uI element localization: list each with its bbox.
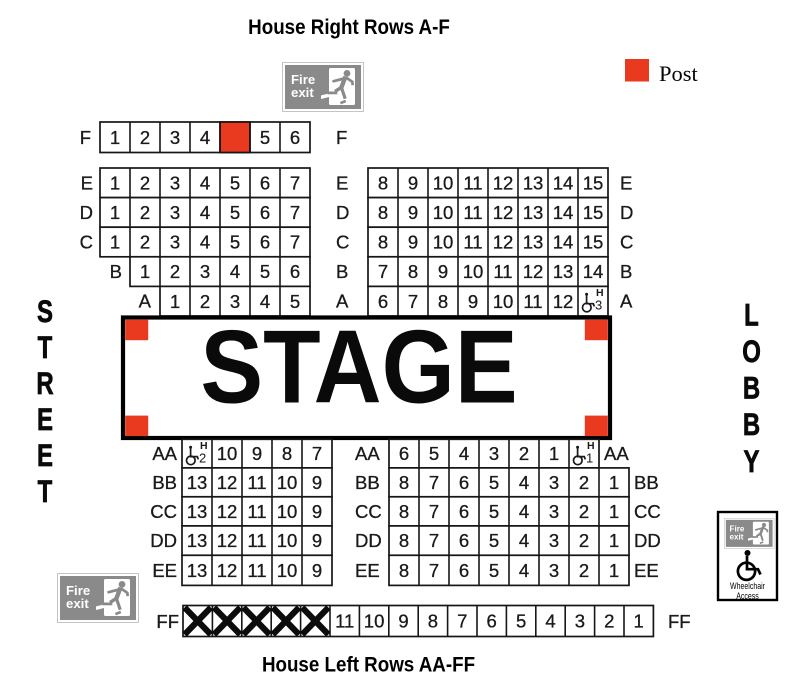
svg-text:10: 10	[433, 172, 454, 193]
svg-text:4: 4	[519, 560, 529, 581]
svg-text:9: 9	[312, 530, 322, 551]
svg-text:6: 6	[487, 611, 497, 632]
svg-text:6: 6	[459, 530, 469, 551]
svg-text:DD: DD	[634, 530, 661, 551]
svg-text:1: 1	[609, 530, 619, 551]
svg-text:9: 9	[398, 611, 408, 632]
svg-text:8: 8	[378, 232, 388, 253]
svg-text:5: 5	[489, 501, 499, 522]
svg-text:FF: FF	[156, 611, 179, 632]
svg-text:BB: BB	[355, 472, 380, 493]
svg-text:1: 1	[609, 472, 619, 493]
svg-text:B: B	[110, 261, 122, 282]
svg-text:3: 3	[549, 560, 559, 581]
svg-text:3: 3	[549, 472, 559, 493]
svg-text:4: 4	[230, 261, 240, 282]
svg-text:3: 3	[575, 611, 585, 632]
svg-text:E: E	[620, 172, 632, 193]
svg-text:11: 11	[247, 472, 266, 493]
svg-text:AA: AA	[152, 443, 177, 464]
svg-text:12: 12	[523, 261, 544, 282]
svg-text:1: 1	[609, 560, 619, 581]
svg-text:5: 5	[260, 261, 270, 282]
svg-text:3: 3	[489, 443, 499, 464]
svg-text:6: 6	[260, 202, 270, 223]
svg-text:8: 8	[378, 172, 388, 193]
svg-text:CC: CC	[355, 501, 382, 522]
svg-text:4: 4	[200, 232, 210, 253]
svg-text:C: C	[80, 232, 93, 253]
svg-text:B: B	[743, 407, 760, 442]
svg-text:4: 4	[519, 472, 529, 493]
svg-text:6: 6	[260, 232, 270, 253]
svg-text:8: 8	[282, 443, 292, 464]
svg-text:7: 7	[457, 611, 467, 632]
svg-text:EE: EE	[634, 560, 659, 581]
svg-text:2: 2	[140, 202, 150, 223]
svg-text:2: 2	[579, 530, 589, 551]
svg-text:9: 9	[408, 202, 418, 223]
svg-text:4: 4	[200, 202, 210, 223]
svg-text:2: 2	[140, 172, 150, 193]
svg-text:C: C	[336, 232, 349, 253]
svg-text:B: B	[743, 370, 760, 405]
svg-text:L: L	[744, 297, 759, 332]
svg-text:3: 3	[549, 501, 559, 522]
svg-text:2: 2	[579, 501, 589, 522]
svg-text:4: 4	[200, 172, 210, 193]
svg-text:7: 7	[312, 443, 322, 464]
svg-text:11: 11	[463, 232, 482, 253]
svg-text:9: 9	[438, 261, 448, 282]
svg-text:3: 3	[170, 172, 180, 193]
svg-text:12: 12	[217, 560, 238, 581]
svg-text:E: E	[81, 172, 93, 193]
svg-text:7: 7	[290, 232, 300, 253]
svg-text:7: 7	[290, 202, 300, 223]
svg-text:2: 2	[170, 261, 180, 282]
svg-text:12: 12	[217, 530, 238, 551]
svg-text:13: 13	[553, 261, 574, 282]
svg-text:9: 9	[408, 232, 418, 253]
svg-text:3: 3	[200, 261, 210, 282]
svg-text:11: 11	[247, 501, 266, 522]
svg-text:BB: BB	[152, 472, 177, 493]
svg-text:11: 11	[463, 202, 482, 223]
svg-text:6: 6	[290, 127, 300, 148]
svg-text:5: 5	[230, 232, 240, 253]
svg-text:9: 9	[312, 501, 322, 522]
svg-text:F: F	[336, 127, 347, 148]
svg-text:F: F	[80, 127, 91, 148]
svg-text:AA: AA	[604, 443, 629, 464]
svg-text:1: 1	[110, 232, 120, 253]
svg-text:6: 6	[399, 443, 409, 464]
svg-text:S: S	[37, 294, 53, 329]
svg-text:7: 7	[290, 172, 300, 193]
svg-text:T: T	[38, 474, 53, 509]
svg-text:3: 3	[595, 298, 602, 313]
svg-text:R: R	[36, 366, 53, 401]
svg-text:4: 4	[200, 127, 210, 148]
svg-text:D: D	[80, 202, 93, 223]
svg-text:10: 10	[364, 611, 385, 632]
svg-text:C: C	[620, 232, 633, 253]
svg-text:A: A	[620, 291, 633, 312]
svg-text:6: 6	[290, 261, 300, 282]
svg-text:1: 1	[586, 451, 593, 466]
svg-text:7: 7	[429, 530, 439, 551]
svg-text:5: 5	[489, 530, 499, 551]
svg-text:D: D	[620, 202, 633, 223]
svg-text:11: 11	[493, 261, 512, 282]
svg-text:1: 1	[110, 127, 120, 148]
svg-text:BB: BB	[634, 472, 659, 493]
svg-text:FF: FF	[668, 611, 691, 632]
svg-text:O: O	[742, 334, 761, 369]
svg-text:E: E	[37, 438, 53, 473]
svg-text:T: T	[38, 330, 53, 365]
svg-text:3: 3	[170, 232, 180, 253]
svg-text:exit: exit	[730, 533, 744, 542]
svg-text:13: 13	[187, 530, 208, 551]
svg-text:12: 12	[493, 172, 514, 193]
svg-text:DD: DD	[150, 530, 177, 551]
svg-text:1: 1	[549, 443, 559, 464]
svg-text:8: 8	[408, 261, 418, 282]
svg-text:7: 7	[378, 261, 388, 282]
svg-text:12: 12	[493, 232, 514, 253]
svg-text:E: E	[37, 402, 53, 437]
svg-text:exit: exit	[291, 85, 314, 100]
svg-text:1: 1	[170, 291, 180, 312]
svg-text:13: 13	[187, 472, 208, 493]
svg-text:13: 13	[187, 501, 208, 522]
svg-text:Y: Y	[744, 444, 760, 479]
svg-text:7: 7	[429, 560, 439, 581]
svg-text:10: 10	[277, 472, 298, 493]
svg-text:15: 15	[583, 202, 604, 223]
svg-text:10: 10	[463, 261, 484, 282]
svg-text:13: 13	[523, 232, 544, 253]
svg-text:10: 10	[277, 501, 298, 522]
svg-text:6: 6	[260, 172, 270, 193]
svg-text:12: 12	[217, 472, 238, 493]
svg-text:7: 7	[429, 501, 439, 522]
svg-text:House Right Rows A-F: House Right Rows A-F	[248, 16, 450, 39]
svg-text:4: 4	[545, 611, 555, 632]
svg-text:5: 5	[230, 172, 240, 193]
svg-text:8: 8	[399, 501, 409, 522]
svg-text:2: 2	[604, 611, 614, 632]
svg-text:AA: AA	[355, 443, 380, 464]
svg-text:13: 13	[523, 172, 544, 193]
svg-text:1: 1	[634, 611, 644, 632]
svg-text:CC: CC	[634, 501, 661, 522]
svg-text:4: 4	[459, 443, 469, 464]
svg-text:STAGE: STAGE	[200, 309, 517, 425]
svg-text:4: 4	[519, 530, 529, 551]
svg-text:8: 8	[378, 202, 388, 223]
svg-text:6: 6	[459, 501, 469, 522]
svg-text:13: 13	[187, 560, 208, 581]
svg-text:11: 11	[247, 530, 266, 551]
svg-text:10: 10	[217, 443, 238, 464]
svg-text:12: 12	[553, 291, 574, 312]
svg-text:3: 3	[170, 202, 180, 223]
svg-text:10: 10	[433, 232, 454, 253]
svg-text:1: 1	[609, 501, 619, 522]
svg-text:1: 1	[110, 202, 120, 223]
svg-text:5: 5	[260, 127, 270, 148]
svg-text:DD: DD	[355, 530, 382, 551]
svg-text:4: 4	[519, 501, 529, 522]
svg-text:14: 14	[553, 202, 574, 223]
svg-text:11: 11	[335, 611, 354, 632]
svg-text:CC: CC	[150, 501, 177, 522]
svg-text:5: 5	[429, 443, 439, 464]
svg-text:14: 14	[583, 261, 604, 282]
svg-text:2: 2	[519, 443, 529, 464]
svg-text:Access: Access	[736, 590, 759, 601]
svg-text:5: 5	[516, 611, 526, 632]
svg-text:5: 5	[489, 560, 499, 581]
svg-text:8: 8	[428, 611, 438, 632]
svg-text:6: 6	[459, 472, 469, 493]
svg-text:House Left Rows AA-FF: House Left Rows AA-FF	[262, 654, 475, 677]
svg-text:E: E	[336, 172, 348, 193]
svg-text:5: 5	[230, 202, 240, 223]
svg-text:2: 2	[140, 232, 150, 253]
svg-text:Post: Post	[659, 61, 699, 86]
svg-text:10: 10	[277, 560, 298, 581]
svg-text:exit: exit	[66, 596, 89, 611]
svg-text:EE: EE	[152, 560, 177, 581]
svg-text:8: 8	[399, 472, 409, 493]
svg-text:11: 11	[463, 172, 482, 193]
svg-text:2: 2	[140, 127, 150, 148]
svg-text:2: 2	[579, 472, 589, 493]
svg-text:12: 12	[217, 501, 238, 522]
svg-text:1: 1	[110, 172, 120, 193]
svg-text:9: 9	[408, 172, 418, 193]
svg-text:10: 10	[277, 530, 298, 551]
svg-text:9: 9	[252, 443, 262, 464]
svg-text:8: 8	[399, 530, 409, 551]
svg-text:6: 6	[459, 560, 469, 581]
svg-text:3: 3	[170, 127, 180, 148]
svg-text:11: 11	[523, 291, 542, 312]
svg-text:15: 15	[583, 232, 604, 253]
svg-text:D: D	[336, 202, 349, 223]
svg-text:14: 14	[553, 172, 574, 193]
svg-text:3: 3	[549, 530, 559, 551]
svg-text:11: 11	[247, 560, 266, 581]
svg-text:13: 13	[523, 202, 544, 223]
svg-text:7: 7	[429, 472, 439, 493]
svg-text:B: B	[620, 261, 632, 282]
svg-text:9: 9	[312, 560, 322, 581]
svg-text:10: 10	[433, 202, 454, 223]
svg-text:2: 2	[199, 451, 206, 466]
svg-text:5: 5	[489, 472, 499, 493]
svg-text:14: 14	[553, 232, 574, 253]
svg-text:A: A	[139, 291, 152, 312]
svg-text:EE: EE	[355, 560, 380, 581]
svg-text:15: 15	[583, 172, 604, 193]
svg-text:B: B	[336, 261, 348, 282]
svg-text:12: 12	[493, 202, 514, 223]
svg-text:8: 8	[399, 560, 409, 581]
svg-text:9: 9	[312, 472, 322, 493]
svg-text:1: 1	[140, 261, 150, 282]
svg-text:2: 2	[579, 560, 589, 581]
